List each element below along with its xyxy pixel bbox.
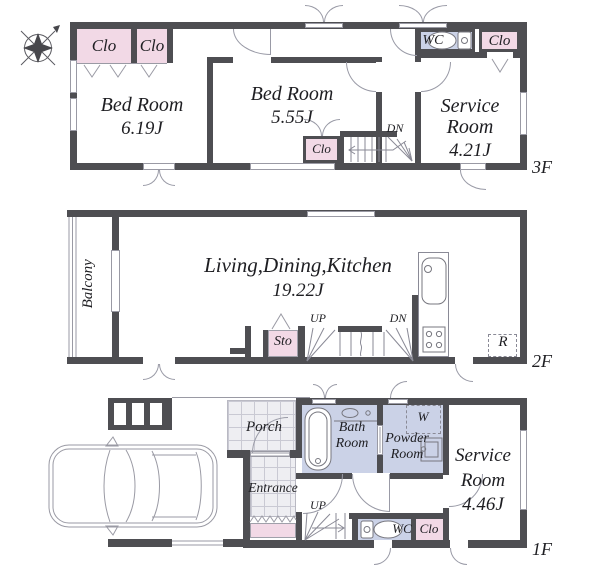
door-opening — [376, 62, 382, 92]
entrance-label: Entrance — [244, 480, 302, 496]
casement-window-swing — [390, 381, 407, 398]
door-swing — [159, 364, 175, 380]
window — [388, 399, 408, 404]
window — [70, 98, 77, 131]
compass-icon — [21, 25, 60, 65]
window — [307, 211, 375, 217]
room-name: Bed Room — [242, 83, 342, 107]
door-swing — [460, 170, 486, 190]
wall — [349, 513, 445, 519]
floor-label: 1F — [524, 539, 560, 560]
fence-slit — [114, 403, 126, 425]
wall — [67, 210, 527, 217]
wall — [296, 512, 302, 548]
door-opening — [487, 52, 513, 58]
storage-label: Sto — [266, 334, 300, 351]
roof-line — [172, 397, 310, 398]
casement-window-swing — [324, 5, 343, 22]
wall — [338, 326, 382, 332]
closet-label: Clo — [303, 141, 340, 156]
window — [111, 250, 120, 312]
door-swing — [233, 29, 271, 55]
shoe-cabinet — [250, 523, 296, 538]
wall — [296, 398, 302, 453]
fence-slit — [150, 403, 162, 425]
fence-slit — [132, 403, 144, 425]
window — [399, 23, 447, 28]
wall — [340, 136, 344, 163]
door-swing — [455, 364, 473, 382]
balcony-label: Balcony — [80, 248, 98, 320]
refrigerator-label: R — [494, 334, 512, 352]
door-opening — [450, 540, 468, 548]
room-name: Bath Room — [327, 420, 377, 452]
room-area: 4.46J — [443, 494, 523, 516]
kitchen-counter — [418, 252, 449, 357]
window — [143, 163, 175, 170]
window — [305, 23, 343, 28]
window — [520, 92, 527, 135]
door-swing — [143, 364, 159, 380]
window — [70, 60, 77, 93]
room-area: 6.19J — [92, 118, 192, 140]
door-swing — [450, 548, 467, 565]
porch-label: Porch — [238, 419, 290, 437]
room-area: 4.21J — [425, 140, 515, 162]
room-name: Service Room — [443, 443, 523, 493]
stairs-direction-label: UP — [306, 498, 330, 512]
window — [250, 163, 335, 170]
closet-front-line — [77, 63, 167, 64]
room-area: 5.55J — [242, 107, 342, 129]
wall — [70, 22, 77, 170]
casement-window-swing — [313, 384, 325, 398]
door-swing — [159, 170, 175, 186]
door-swing — [374, 548, 391, 565]
door-swing — [352, 474, 390, 512]
door-opening — [233, 57, 271, 63]
wc-label: WC — [388, 521, 416, 536]
door-opening — [374, 540, 392, 548]
wall — [70, 22, 527, 29]
wall — [243, 452, 250, 548]
door-swing — [390, 29, 417, 56]
garage-opening — [172, 539, 223, 547]
closet-label: Clo — [479, 33, 520, 51]
balcony-railing — [69, 217, 76, 357]
wall — [230, 348, 251, 354]
window — [312, 399, 336, 404]
floor-label: 2F — [524, 351, 560, 372]
room-area: 19.22J — [188, 280, 408, 302]
door-swing — [346, 62, 376, 92]
closet-label: Clo — [414, 521, 444, 536]
stairs-direction-label: UP — [306, 311, 330, 325]
floor-plan: Clo Clo Bed Room 6.19J Bed Room 5.55J Cl… — [0, 0, 600, 577]
stairs-direction-label: DN — [386, 311, 410, 325]
casement-window-swing — [305, 5, 324, 22]
door-opening — [143, 357, 175, 364]
closet-label: Clo — [77, 36, 131, 56]
wall — [290, 450, 302, 458]
washer-label: W — [415, 409, 431, 424]
stairs-1f — [305, 512, 345, 540]
window — [460, 163, 486, 170]
room-name: Living,Dining,Kitchen — [188, 253, 408, 278]
room-name: Service Room — [425, 96, 515, 138]
wall — [207, 57, 213, 163]
wc-label: WC — [419, 33, 447, 50]
wall — [520, 217, 527, 357]
stairs-direction-label: DN — [382, 121, 408, 135]
door-swing — [421, 62, 451, 92]
wall — [227, 450, 250, 458]
door-opening — [455, 357, 473, 364]
floor-label: 3F — [524, 157, 560, 178]
car-icon — [49, 437, 217, 535]
room-name: Powder Room — [378, 431, 436, 463]
door-swing — [143, 170, 159, 186]
wall — [352, 519, 358, 540]
casement-window-swing — [325, 384, 337, 398]
room-name: Bed Room — [92, 94, 192, 118]
closet-label: Clo — [135, 36, 169, 56]
casement-window-swing — [423, 5, 447, 22]
casement-window-swing — [399, 5, 423, 22]
